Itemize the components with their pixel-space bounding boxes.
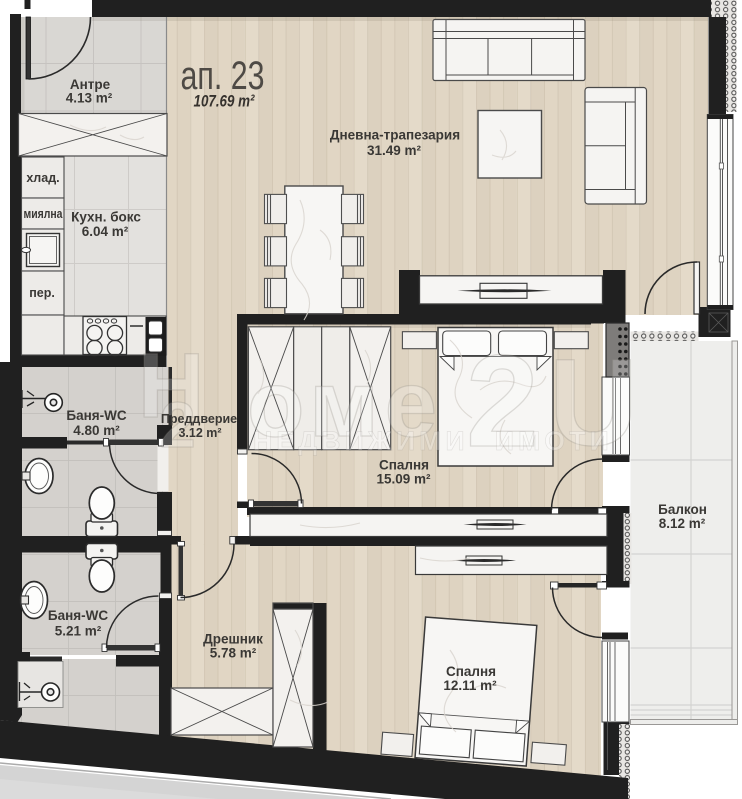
svg-text:107.69 m²: 107.69 m² [194,92,256,111]
svg-text:Спалня: Спалня [379,458,429,473]
svg-text:31.49 m²: 31.49 m² [367,143,422,158]
svg-text:5.21 m²: 5.21 m² [55,624,102,639]
svg-text:Баня-WC: Баня-WC [48,608,108,623]
svg-text:8.12 m²: 8.12 m² [659,516,706,531]
svg-text:15.09 m²: 15.09 m² [376,472,431,487]
svg-text:Кухн. бокс: Кухн. бокс [71,210,141,225]
svg-text:6.04 m²: 6.04 m² [82,224,129,239]
svg-text:пер.: пер. [29,286,55,300]
svg-text:4.13 m²: 4.13 m² [66,91,113,106]
svg-text:Дневна-трапезария: Дневна-трапезария [330,128,460,143]
svg-text:Баня-WC: Баня-WC [66,408,126,423]
svg-text:Дрешник: Дрешник [203,632,263,647]
svg-text:Спалня: Спалня [446,664,496,679]
svg-text:миялна: миялна [24,207,64,221]
svg-text:12.11 m²: 12.11 m² [443,678,497,693]
svg-text:5.78 m²: 5.78 m² [210,646,257,661]
svg-text:НЕДВИЖИМИ ИМОТИ: НЕДВИЖИМИ ИМОТИ [253,426,613,456]
svg-text:Балкон: Балкон [658,502,707,517]
svg-text:хлад.: хлад. [26,171,59,185]
svg-text:3.12 m²: 3.12 m² [178,426,221,440]
svg-text:4.80 m²: 4.80 m² [73,423,120,438]
svg-text:Преддверие: Преддверие [161,412,237,426]
